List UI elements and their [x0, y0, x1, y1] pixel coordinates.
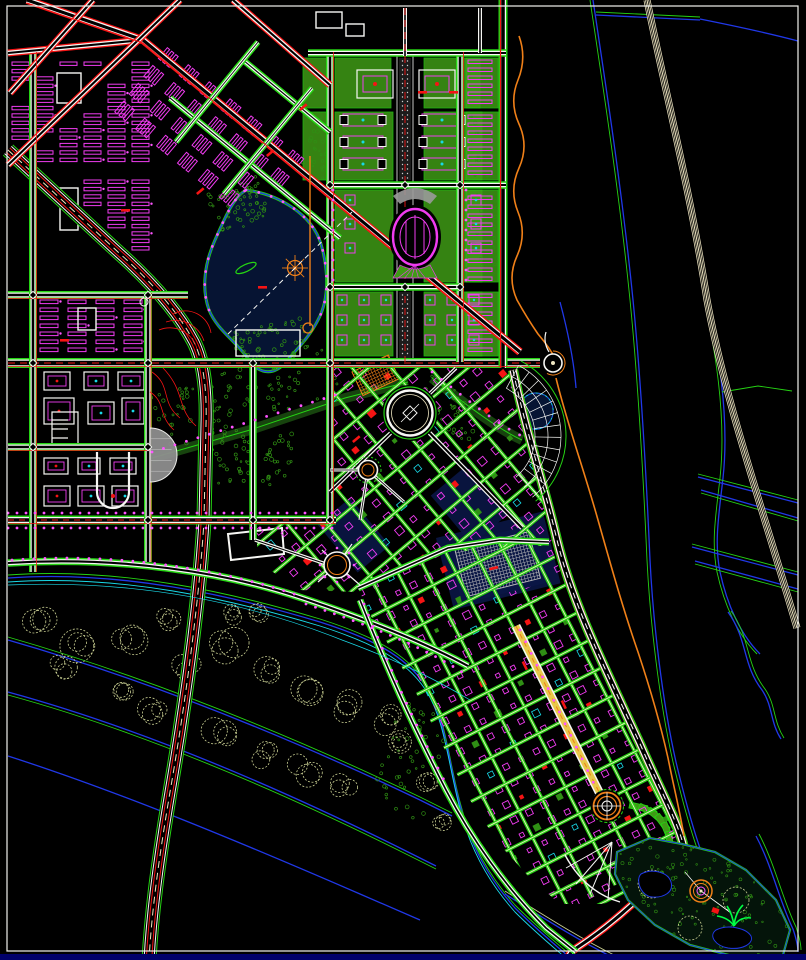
east-bank-highway	[647, 0, 797, 628]
tree-cluster	[433, 814, 452, 831]
tree-cluster	[113, 683, 133, 701]
western-expressway	[8, 150, 206, 960]
tree-cluster	[330, 774, 357, 797]
tree-cluster	[287, 754, 322, 787]
tree-cluster	[291, 676, 323, 706]
tree-cluster	[334, 690, 362, 723]
island-spur	[722, 386, 792, 392]
tree-cluster	[389, 731, 412, 754]
peninsula-circle-plaza	[591, 790, 624, 823]
tree-cluster	[254, 657, 280, 684]
central-circle-plaza	[382, 385, 438, 441]
tree-cluster	[50, 655, 77, 679]
riverside-hook-junction	[544, 332, 565, 375]
river-west-bank	[590, 0, 706, 864]
waterfront-link	[255, 540, 332, 566]
beach-contour	[560, 302, 576, 388]
channel-1-south-edge	[8, 692, 436, 869]
tree-cluster	[157, 608, 181, 630]
district-blocks-layer	[12, 12, 685, 907]
tree-cluster	[112, 625, 148, 655]
river-branch-east	[700, 19, 798, 41]
cad-canvas[interactable]	[0, 0, 806, 960]
channel-2-edge	[8, 756, 420, 920]
tree-cluster	[252, 742, 277, 769]
tree-cluster	[138, 697, 168, 724]
tree-cluster	[209, 627, 249, 664]
tree-cluster	[22, 607, 57, 633]
master-plan-drawing	[0, 0, 806, 960]
island-channel-1a	[698, 474, 798, 503]
se-stream-1	[728, 611, 784, 739]
tree-cluster	[201, 718, 236, 746]
tree-cluster	[224, 604, 242, 625]
tree-cluster	[374, 704, 401, 735]
